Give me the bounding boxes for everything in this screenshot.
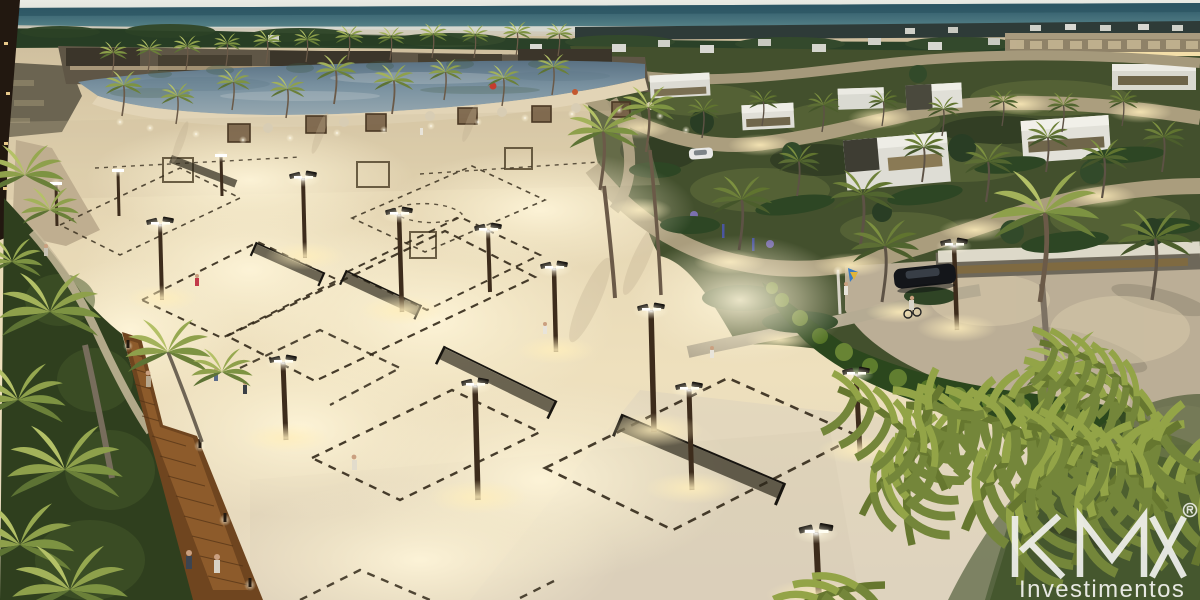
svg-text:Investimentos: Investimentos [1019,576,1185,600]
